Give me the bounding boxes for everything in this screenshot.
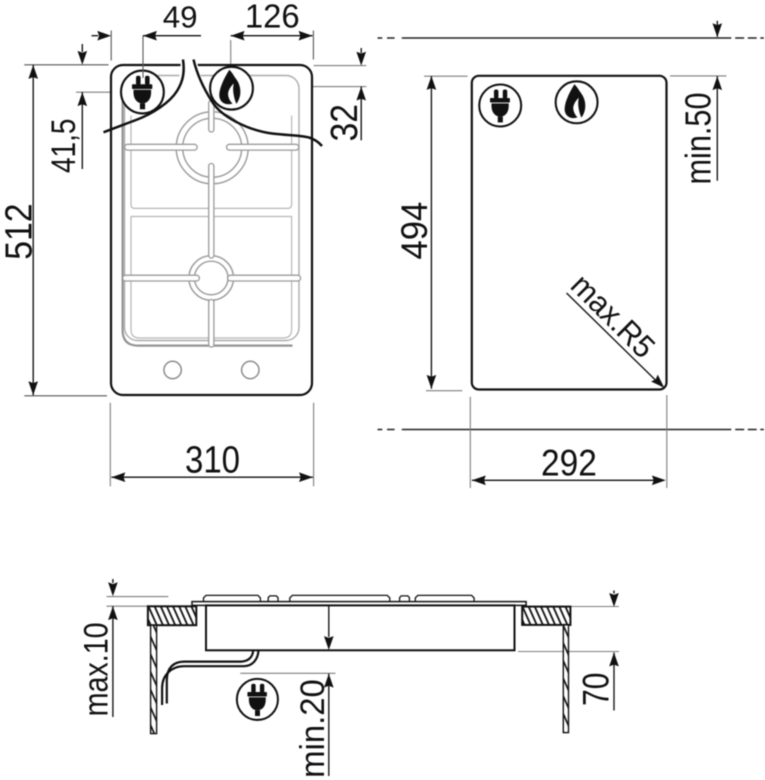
svg-text:min.20: min.20	[295, 679, 333, 778]
svg-text:49: 49	[163, 0, 198, 35]
svg-text:292: 292	[541, 442, 597, 484]
svg-text:max.10: max.10	[77, 622, 115, 716]
svg-text:126: 126	[245, 0, 300, 35]
svg-text:512: 512	[0, 203, 40, 259]
svg-text:32: 32	[322, 104, 366, 141]
svg-text:310: 310	[185, 439, 240, 482]
svg-text:min.50: min.50	[679, 92, 719, 184]
svg-text:494: 494	[394, 202, 435, 260]
svg-text:70: 70	[577, 673, 618, 706]
svg-text:41,5: 41,5	[44, 119, 82, 173]
